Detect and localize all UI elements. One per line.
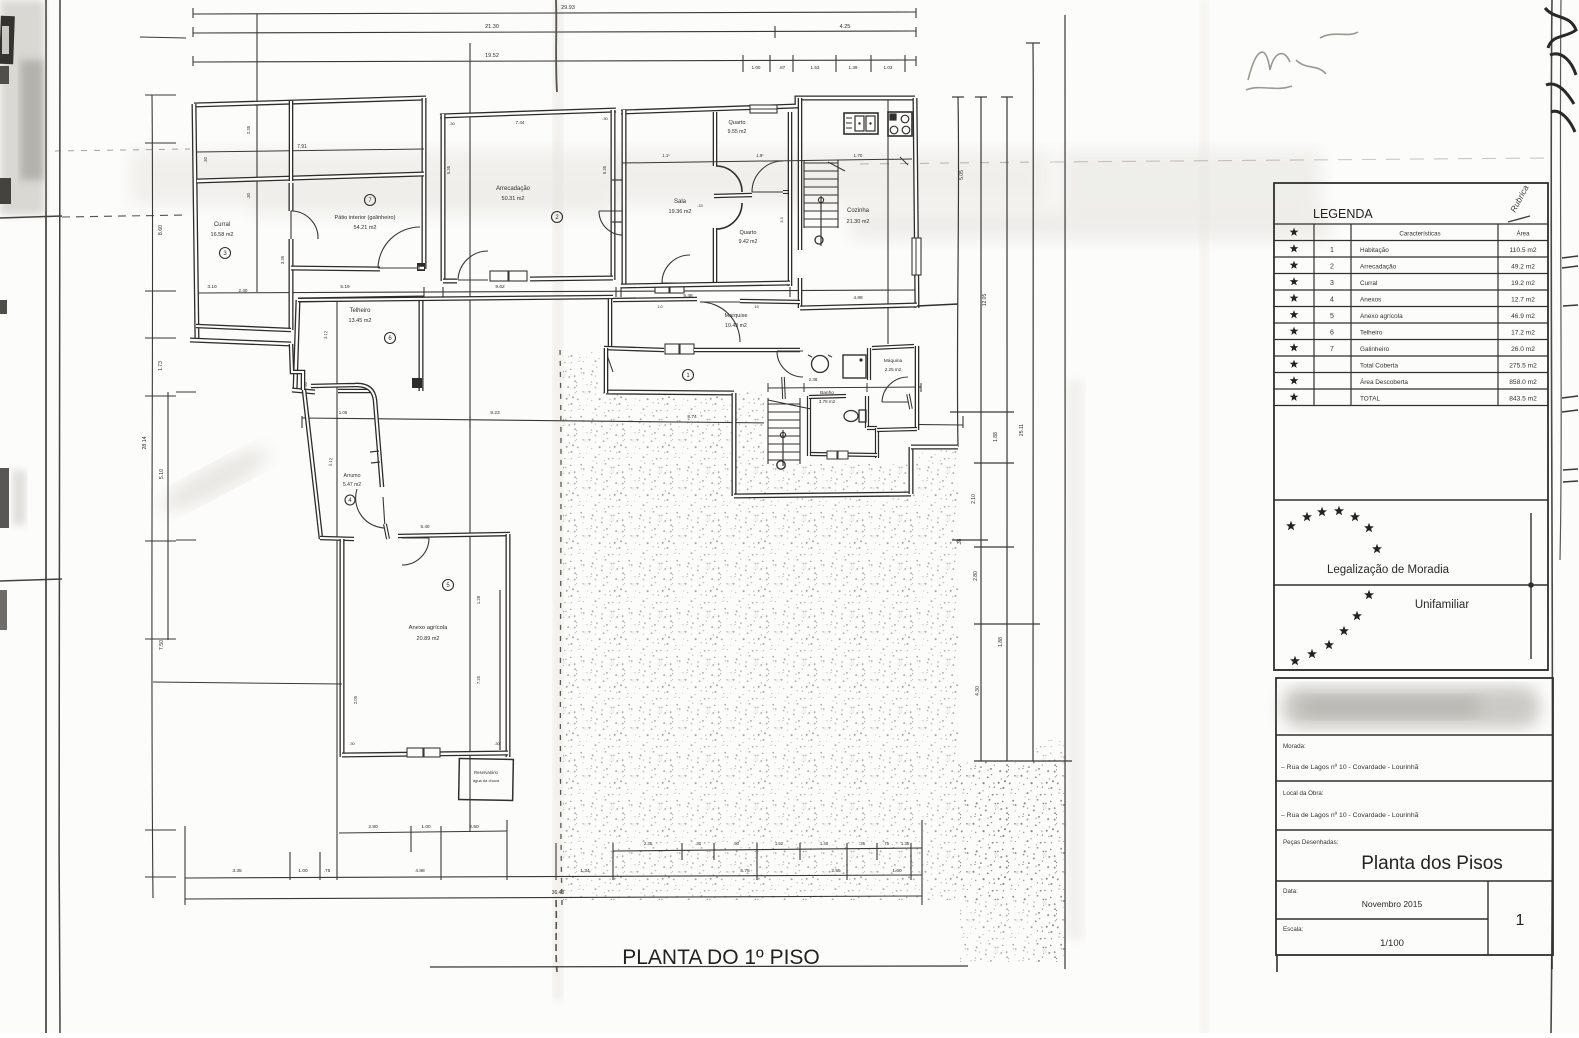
svg-text:4.30: 4.30 — [975, 686, 981, 696]
svg-text:4.25: 4.25 — [840, 24, 851, 30]
svg-text:3.12: 3.12 — [323, 330, 329, 339]
svg-text:– Rua de Lagos nº 10 - Cov: – Rua de Lagos nº 10 - Covardade - Louri… — [1281, 764, 1419, 771]
svg-text:19.52: 19.52 — [485, 53, 499, 59]
svg-text:.30: .30 — [203, 156, 208, 162]
svg-text:1.00: 1.00 — [421, 824, 431, 830]
svg-text:2.35: 2.35 — [644, 841, 653, 846]
svg-text:Total Coberta: Total Coberta — [1360, 363, 1398, 370]
svg-text:1.52: 1.52 — [775, 841, 784, 846]
svg-text:5.19: 5.19 — [340, 284, 350, 290]
svg-text:5.05: 5.05 — [959, 170, 965, 180]
svg-text:1.0: 1.0 — [657, 304, 663, 309]
svg-text:LEGENDA: LEGENDA — [1313, 207, 1373, 221]
svg-text:Banho: Banho — [820, 390, 834, 396]
svg-text:21.30 m2: 21.30 m2 — [847, 219, 870, 225]
svg-text:Anexo agrícola: Anexo agrícola — [1360, 313, 1403, 320]
svg-text:.30: .30 — [349, 741, 355, 746]
svg-text:10.43 m2: 10.43 m2 — [725, 323, 747, 329]
svg-text:8.74: 8.74 — [687, 414, 697, 420]
svg-text:3.10: 3.10 — [207, 284, 217, 290]
svg-text:1.05: 1.05 — [339, 410, 348, 415]
svg-text:17.2 m2: 17.2 m2 — [1511, 330, 1535, 337]
svg-text:2.40: 2.40 — [239, 288, 248, 293]
svg-text:843.5 m2: 843.5 m2 — [1509, 396, 1537, 403]
svg-text:858.0 m2: 858.0 m2 — [1509, 379, 1537, 386]
svg-text:1.39: 1.39 — [849, 65, 858, 70]
svg-text:.75: .75 — [324, 868, 331, 874]
svg-text:50.31 m2: 50.31 m2 — [502, 196, 525, 202]
svg-text:Unifamiliar: Unifamiliar — [1415, 599, 1469, 611]
svg-text:1.03: 1.03 — [884, 65, 893, 70]
svg-text:2.10: 2.10 — [971, 494, 977, 504]
svg-text:Características: Características — [1399, 231, 1440, 238]
svg-text:1.73: 1.73 — [158, 361, 164, 371]
svg-text:1.40: 1.40 — [820, 841, 829, 846]
svg-text:8.60: 8.60 — [158, 225, 164, 235]
svg-text:7: 7 — [1330, 346, 1334, 353]
svg-text:.30: .30 — [449, 121, 455, 126]
svg-text:36.43: 36.43 — [552, 890, 565, 896]
svg-text:1.34: 1.34 — [580, 868, 590, 874]
svg-text:Quarto: Quarto — [739, 230, 756, 236]
svg-text:3: 3 — [1330, 280, 1334, 287]
svg-text:– Rua de Lagos nº 10 - Cov: – Rua de Lagos nº 10 - Covardade - Louri… — [1281, 812, 1419, 819]
svg-text:Anexos: Anexos — [1360, 297, 1381, 304]
svg-text:1.1¹: 1.1¹ — [662, 153, 670, 158]
svg-text:Sala: Sala — [674, 199, 687, 205]
svg-text:2.80: 2.80 — [973, 571, 979, 581]
svg-text:.30: .30 — [303, 381, 308, 387]
svg-text:1/100: 1/100 — [1380, 938, 1404, 949]
svg-text:3.35: 3.35 — [232, 868, 242, 874]
svg-text:5.12: 5.12 — [328, 457, 334, 466]
svg-text:Anexo agrícola: Anexo agrícola — [409, 625, 448, 631]
svg-text:.30: .30 — [695, 841, 702, 846]
svg-text:7.91: 7.91 — [297, 144, 307, 150]
svg-text:Telheiro: Telheiro — [349, 308, 371, 314]
svg-text:275.5 m2: 275.5 m2 — [1509, 363, 1537, 370]
svg-text:.36: .36 — [957, 538, 963, 545]
svg-text:2.80: 2.80 — [368, 824, 378, 830]
svg-text:Quarto: Quarto — [728, 120, 745, 126]
svg-text:46.9 m2: 46.9 m2 — [1511, 313, 1535, 320]
svg-text:.90: .90 — [733, 841, 740, 846]
svg-text:Área: Área — [1516, 231, 1530, 238]
svg-text:.30: .30 — [602, 116, 608, 121]
svg-text:Área Descoberta: Área Descoberta — [1360, 377, 1408, 386]
svg-text:1.00: 1.00 — [298, 868, 308, 874]
svg-text:5.10: 5.10 — [159, 469, 165, 479]
svg-text:Novembro 2015: Novembro 2015 — [1362, 899, 1423, 909]
svg-text:20.89 m2: 20.89 m2 — [417, 636, 440, 642]
svg-text:9.23: 9.23 — [490, 410, 500, 416]
svg-text:Legalização de Moradia: Legalização de Moradia — [1327, 564, 1450, 576]
svg-text:5: 5 — [1330, 313, 1334, 320]
svg-text:Cozinha: Cozinha — [847, 208, 870, 214]
svg-text:PLANTA DO 1º PISO: PLANTA DO 1º PISO — [622, 946, 820, 969]
svg-text:TOTAL: TOTAL — [1360, 396, 1380, 403]
svg-text:1: 1 — [1330, 247, 1334, 254]
svg-text:19.36 m2: 19.36 m2 — [669, 209, 692, 215]
svg-text:.30: .30 — [494, 741, 500, 746]
svg-text:5.40: 5.40 — [421, 524, 430, 529]
svg-text:6: 6 — [1330, 330, 1334, 337]
svg-text:9.55 m2: 9.55 m2 — [728, 129, 747, 135]
svg-text:1.00: 1.00 — [752, 65, 761, 70]
svg-text:.87: .87 — [779, 65, 786, 70]
svg-text:29.93: 29.93 — [561, 5, 575, 11]
svg-text:Escala:: Escala: — [1283, 926, 1304, 933]
svg-text:Pátio interior (galinheiro): Pátio interior (galinheiro) — [335, 215, 396, 221]
svg-text:7.20: 7.20 — [476, 675, 481, 684]
svg-text:21.30: 21.30 — [485, 24, 499, 30]
svg-text:9.62: 9.62 — [495, 284, 505, 290]
svg-text:1.35: 1.35 — [901, 841, 910, 846]
svg-text:9.42 m2: 9.42 m2 — [739, 239, 758, 245]
svg-text:.75: .75 — [883, 841, 890, 846]
svg-text:Telheiro: Telheiro — [1360, 330, 1383, 337]
svg-text:2.05: 2.05 — [353, 695, 358, 704]
svg-text:Máquina: Máquina — [884, 358, 903, 364]
svg-text:1.53: 1.53 — [811, 65, 820, 70]
svg-text:3.3: 3.3 — [779, 216, 784, 222]
svg-text:Arrecadação: Arrecadação — [1360, 264, 1397, 271]
svg-text:2.55: 2.55 — [831, 868, 841, 874]
svg-text:13.45 m2: 13.45 m2 — [349, 318, 372, 324]
svg-text:2.38: 2.38 — [809, 377, 818, 382]
svg-text:.30: .30 — [246, 192, 251, 198]
svg-text:Morada:: Morada: — [1283, 743, 1306, 750]
svg-text:1.70: 1.70 — [854, 153, 863, 158]
svg-text:7.50: 7.50 — [159, 640, 165, 650]
svg-text:4.88: 4.88 — [853, 295, 863, 301]
svg-text:12.05: 12.05 — [982, 294, 988, 307]
svg-text:Galinheiro: Galinheiro — [1360, 346, 1390, 353]
svg-text:1.88: 1.88 — [993, 432, 999, 442]
svg-text:12.7 m2: 12.7 m2 — [1511, 297, 1535, 304]
svg-text:1.60: 1.60 — [892, 868, 902, 874]
svg-text:4: 4 — [1330, 297, 1334, 304]
svg-text:.35: .35 — [859, 841, 866, 846]
svg-text:Marquise: Marquise — [724, 313, 747, 319]
svg-text:7.44: 7.44 — [516, 120, 525, 125]
svg-text:Arrumo: Arrumo — [343, 473, 360, 479]
svg-text:2.50: 2.50 — [469, 824, 479, 830]
svg-text:5.75: 5.75 — [740, 868, 750, 874]
svg-text:2: 2 — [1330, 264, 1334, 271]
svg-text:25.11: 25.11 — [1019, 424, 1025, 436]
svg-text:3.78 m2: 3.78 m2 — [819, 399, 836, 404]
svg-text:Peças Desenhadas:: Peças Desenhadas: — [1283, 839, 1339, 846]
svg-text:54.21 m2: 54.21 m2 — [354, 225, 377, 231]
svg-text:Data:: Data: — [1283, 888, 1298, 895]
svg-text:4.88: 4.88 — [415, 868, 425, 874]
svg-text:.15: .15 — [697, 203, 703, 208]
svg-text:110.5 m2: 110.5 m2 — [1509, 247, 1536, 254]
svg-text:19.2 m2: 19.2 m2 — [1511, 280, 1535, 287]
svg-text:26.0 m2: 26.0 m2 — [1511, 346, 1535, 353]
svg-text:Habitação: Habitação — [1360, 247, 1389, 254]
svg-text:Curral: Curral — [1360, 280, 1377, 287]
svg-text:1: 1 — [1516, 912, 1525, 929]
svg-text:Planta dos Pisos: Planta dos Pisos — [1361, 853, 1503, 874]
svg-text:16.58 m2: 16.58 m2 — [211, 232, 234, 238]
svg-text:1.88: 1.88 — [998, 637, 1004, 647]
svg-text:Curral: Curral — [214, 222, 230, 228]
svg-text:2.25 m2: 2.25 m2 — [885, 367, 902, 372]
svg-text:Arrecadação: Arrecadação — [496, 186, 531, 192]
svg-text:49.2 m2: 49.2 m2 — [1511, 264, 1535, 271]
svg-text:Reservatório: Reservatório — [474, 770, 498, 775]
svg-text:1.9¹: 1.9¹ — [756, 153, 764, 158]
svg-text:3.35: 3.35 — [280, 255, 285, 264]
svg-text:água da chuva: água da chuva — [473, 778, 500, 783]
svg-text:2.35: 2.35 — [246, 125, 251, 134]
svg-text:1.28: 1.28 — [476, 595, 481, 604]
svg-text:5.35: 5.35 — [602, 165, 607, 174]
svg-text:.15: .15 — [753, 304, 759, 309]
svg-text:28.14: 28.14 — [142, 436, 148, 449]
svg-text:5.47 m2: 5.47 m2 — [343, 482, 361, 488]
svg-text:Local da Obra:: Local da Obra: — [1283, 790, 1324, 797]
svg-text:5.35: 5.35 — [446, 165, 451, 174]
